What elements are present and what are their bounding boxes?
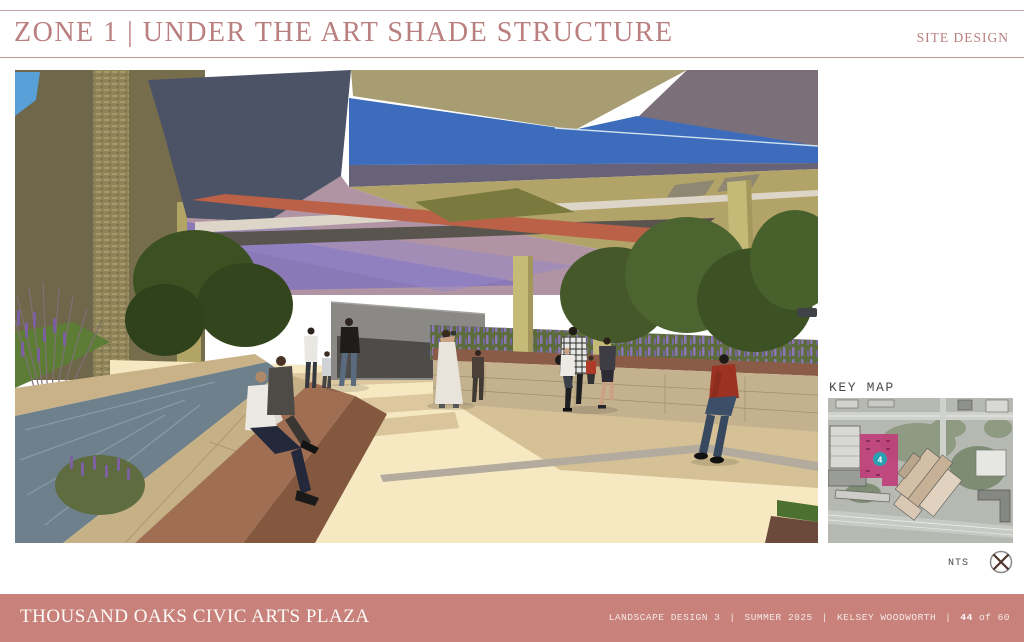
slide-page: ZONE 1 | UNDER THE ART SHADE STRUCTURE S… — [0, 0, 1024, 642]
footer-separator: | — [822, 612, 828, 623]
top-rule — [0, 10, 1024, 11]
footer-page-number: 44 — [960, 612, 972, 623]
north-arrow-icon — [988, 549, 1014, 575]
rendering-canvas — [15, 70, 818, 543]
footer-meta: LANDSCAPE DESIGN 3|SUMMER 2025|KELSEY WO… — [609, 612, 1010, 623]
key-map-label: KEY MAP — [829, 380, 895, 395]
footer-author: KELSEY WOODWORTH — [837, 612, 936, 623]
page-title: ZONE 1 | UNDER THE ART SHADE STRUCTURE — [14, 17, 674, 49]
map-zone-marker: 4 — [873, 452, 887, 466]
footer-separator: | — [729, 612, 735, 623]
footer-course: LANDSCAPE DESIGN 3 — [609, 612, 721, 623]
zone-marker-number: 4 — [878, 456, 883, 465]
footer-separator: | — [945, 612, 951, 623]
scale-note-row: NTS — [948, 549, 1014, 577]
scale-note: NTS — [948, 558, 969, 569]
footer-project-title: THOUSAND OAKS CIVIC ARTS PLAZA — [20, 606, 370, 628]
shade-structure-rendering — [15, 70, 818, 543]
key-map-image: 4 — [828, 398, 1013, 543]
footer-term: SUMMER 2025 — [745, 612, 813, 623]
header-rule — [0, 57, 1024, 58]
section-label: SITE DESIGN — [917, 30, 1009, 46]
key-map-canvas: 4 — [828, 398, 1013, 543]
footer-page-suffix: of 60 — [979, 612, 1010, 623]
footer-bar: THOUSAND OAKS CIVIC ARTS PLAZA LANDSCAPE… — [0, 594, 1024, 642]
